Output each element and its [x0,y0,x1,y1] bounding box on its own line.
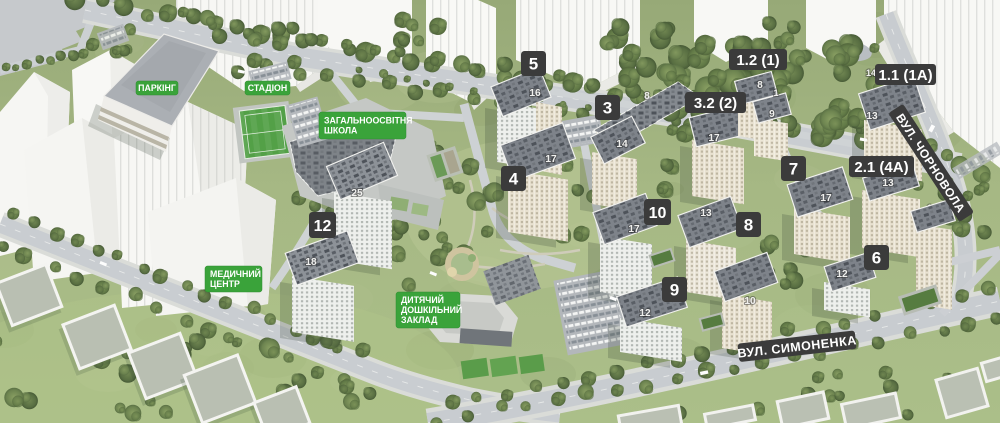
svg-text:ЦЕНТР: ЦЕНТР [210,279,240,289]
svg-text:10: 10 [649,205,667,222]
svg-text:16: 16 [529,88,541,99]
svg-text:2.1 (4А): 2.1 (4А) [854,159,908,176]
svg-text:ШКОЛА: ШКОЛА [324,126,358,136]
svg-text:9: 9 [769,109,775,120]
svg-text:ДИТЯЧИЙ: ДИТЯЧИЙ [401,294,444,305]
svg-text:6: 6 [872,249,881,268]
svg-text:17: 17 [820,193,832,204]
svg-text:3: 3 [603,99,612,118]
svg-text:13: 13 [882,178,894,189]
svg-text:14: 14 [866,68,876,78]
svg-text:ЗАГАЛЬНООСВІТНЯ: ЗАГАЛЬНООСВІТНЯ [324,116,413,126]
svg-text:5: 5 [529,55,538,74]
svg-text:10: 10 [744,296,756,307]
svg-text:14: 14 [616,139,628,150]
svg-text:1.1 (1А): 1.1 (1А) [878,67,932,84]
svg-text:8: 8 [744,216,753,235]
svg-text:18: 18 [305,257,317,268]
svg-text:СТАДІОН: СТАДІОН [248,83,288,93]
svg-text:ЗАКЛАД: ЗАКЛАД [401,315,438,325]
svg-text:МЕДИЧНИЙ: МЕДИЧНИЙ [210,268,261,279]
svg-text:9: 9 [670,281,679,300]
svg-text:12: 12 [836,269,848,280]
svg-text:8: 8 [644,91,650,102]
svg-text:8: 8 [757,80,763,91]
svg-text:13: 13 [700,208,712,219]
svg-text:17: 17 [708,133,720,144]
svg-text:7: 7 [789,160,798,179]
svg-text:12: 12 [314,218,332,235]
svg-text:17: 17 [628,224,640,235]
svg-text:1: 1 [773,88,778,98]
svg-text:4: 4 [509,170,519,189]
svg-text:25: 25 [351,188,363,199]
svg-text:12: 12 [639,308,651,319]
svg-text:ПАРКІНГ: ПАРКІНГ [138,83,176,93]
svg-text:1.2 (1): 1.2 (1) [736,52,779,69]
svg-text:3.2 (2): 3.2 (2) [694,95,737,112]
svg-text:13: 13 [866,111,878,122]
svg-text:ДОШКІЛЬНИЙ: ДОШКІЛЬНИЙ [401,304,462,315]
svg-text:17: 17 [545,154,557,165]
